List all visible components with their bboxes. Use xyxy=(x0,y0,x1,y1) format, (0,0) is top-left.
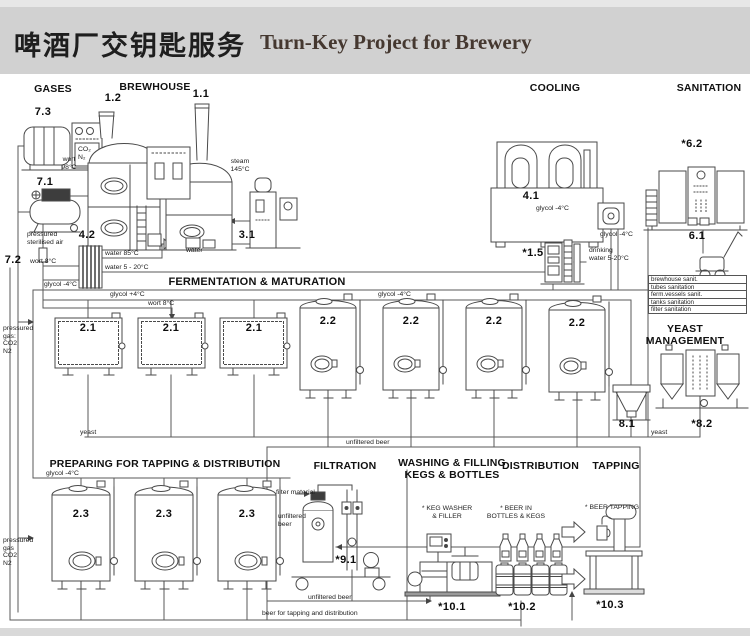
diagram-label: * KEG WASHER & FILLER xyxy=(410,505,484,520)
equipment-number: *6.2 xyxy=(674,138,710,150)
glycol-expansion-vessel xyxy=(598,203,624,229)
maturation-tank-2-2 xyxy=(300,294,364,398)
section-tapping: TAPPING xyxy=(586,461,646,473)
diagram-label: unfiltered beer xyxy=(346,439,406,447)
keg-washer-filler xyxy=(405,534,500,596)
section-sanitation: SANITATION xyxy=(668,83,750,95)
equipment-number: 2.1 xyxy=(73,322,103,334)
diagram-label: water xyxy=(186,247,216,255)
equipment-number: 2.3 xyxy=(232,508,262,520)
diagram-label: wort 8°C xyxy=(148,300,188,308)
diagram-label: pressured gas CO2 N2 xyxy=(3,537,43,567)
bottom-strip xyxy=(0,628,750,636)
sanitation-list-item: filter sanitation xyxy=(648,305,747,314)
diagram-label: glycol +4°C xyxy=(110,291,160,299)
diagram-label: yeast xyxy=(651,429,681,437)
maturation-tank-2-2 xyxy=(466,294,530,398)
equipment-number: 6.1 xyxy=(682,230,712,242)
section-filtration: FILTRATION xyxy=(300,461,390,473)
cip-station xyxy=(644,167,747,230)
maturation-tank-2-2 xyxy=(383,294,447,398)
sanitation-list: brewhouse sanit.tubes sanitationferm.ves… xyxy=(648,276,747,314)
diagram-label: water 5 - 20°C xyxy=(105,264,165,272)
diagram-label: beer for tapping and distribution xyxy=(262,610,402,618)
beer-tapping-unit xyxy=(584,505,644,594)
diagram-label: pressured gas: CO2 N2 xyxy=(3,325,43,355)
equipment-number: 2.2 xyxy=(313,315,343,327)
equipment-number: *8.2 xyxy=(684,418,720,430)
brewhouse-control-panel xyxy=(147,147,190,199)
equipment-number: 8.1 xyxy=(612,418,642,430)
equipment-number: 7.1 xyxy=(30,176,60,188)
equipment-number: 2.2 xyxy=(396,315,426,327)
yeast-hopper xyxy=(613,385,650,420)
diagram-label: * BEER IN BOTTLES & KEGS xyxy=(476,505,556,520)
diagram-label: wort 8°C xyxy=(30,258,70,266)
diagram-label: CO₂ N₂ xyxy=(78,146,98,161)
equipment-number: 7.2 xyxy=(0,254,26,266)
diagram-canvas: 啤酒厂交钥匙服务 Turn-Key Project for Brewery xyxy=(0,0,750,636)
diagram-label: unfiltered beer xyxy=(308,594,368,602)
section-preparing: PREPARING FOR TAPPING & DISTRIBUTION xyxy=(40,459,290,471)
yeast-management-unit xyxy=(656,345,748,408)
diagram-label: drinking water 5-20°C xyxy=(589,247,644,262)
section-distribution: DISTRIBUTION xyxy=(498,461,583,473)
equipment-number: 2.1 xyxy=(239,322,269,334)
distribution-arrow xyxy=(562,522,585,542)
diagram-label: unfiltered beer xyxy=(278,513,318,528)
diagram-label: glycol -4°C xyxy=(44,281,94,289)
diagram-label: pressured sterilised air xyxy=(27,231,77,246)
air-compressor xyxy=(30,189,80,232)
kegs-group xyxy=(496,563,567,595)
equipment-number: *1.5 xyxy=(516,247,550,259)
diagram-label: water 85°C xyxy=(105,250,155,258)
maturation-tank-2-2 xyxy=(549,296,613,400)
serving-tank-2-3 xyxy=(135,481,201,589)
equipment-number: *10.3 xyxy=(588,599,632,611)
diagram-label: filter material xyxy=(276,489,328,497)
equipment-number: *10.2 xyxy=(500,601,544,613)
diagram-label: glycol -4°C xyxy=(600,231,650,239)
equipment-number: 3.1 xyxy=(232,229,262,241)
equipment-number: 2.2 xyxy=(562,317,592,329)
glycol-cooling-unit xyxy=(491,142,603,247)
equipment-number: 2.3 xyxy=(149,508,179,520)
diagram-label: steam 145°C xyxy=(222,158,258,173)
serving-tank-2-3 xyxy=(52,481,118,589)
diagram-label: glycol -4°C xyxy=(46,470,96,478)
equipment-number: 7.3 xyxy=(28,106,58,118)
equipment-number: 4.1 xyxy=(516,190,546,202)
section-washing: WASHING & FILLING KEGS & BOTTLES xyxy=(398,458,506,481)
equipment-number: 2.3 xyxy=(66,508,96,520)
equipment-number: 2.2 xyxy=(479,315,509,327)
equipment-number: *10.1 xyxy=(430,601,474,613)
diagram-label: glycol -4°C xyxy=(536,205,586,213)
serving-tank-2-3 xyxy=(218,481,284,589)
section-yeast-management: YEAST MANAGEMENT xyxy=(635,324,735,347)
section-fermentation: FERMENTATION & MATURATION xyxy=(157,277,357,289)
diagram-label: glycol -4°C xyxy=(378,291,428,299)
diagram-label: yeast xyxy=(80,429,110,437)
equipment-number: 1.2 xyxy=(98,92,128,104)
equipment-number: *9.1 xyxy=(328,554,364,566)
equipment-number: 2.1 xyxy=(156,322,186,334)
filter-unit xyxy=(292,485,390,590)
equipment-number: 1.1 xyxy=(186,88,216,100)
section-gases: GASES xyxy=(18,84,88,96)
section-cooling: COOLING xyxy=(515,83,595,95)
equipment-number: 4.2 xyxy=(72,229,102,241)
diagram-label: * BEER TAPPING xyxy=(570,504,654,512)
